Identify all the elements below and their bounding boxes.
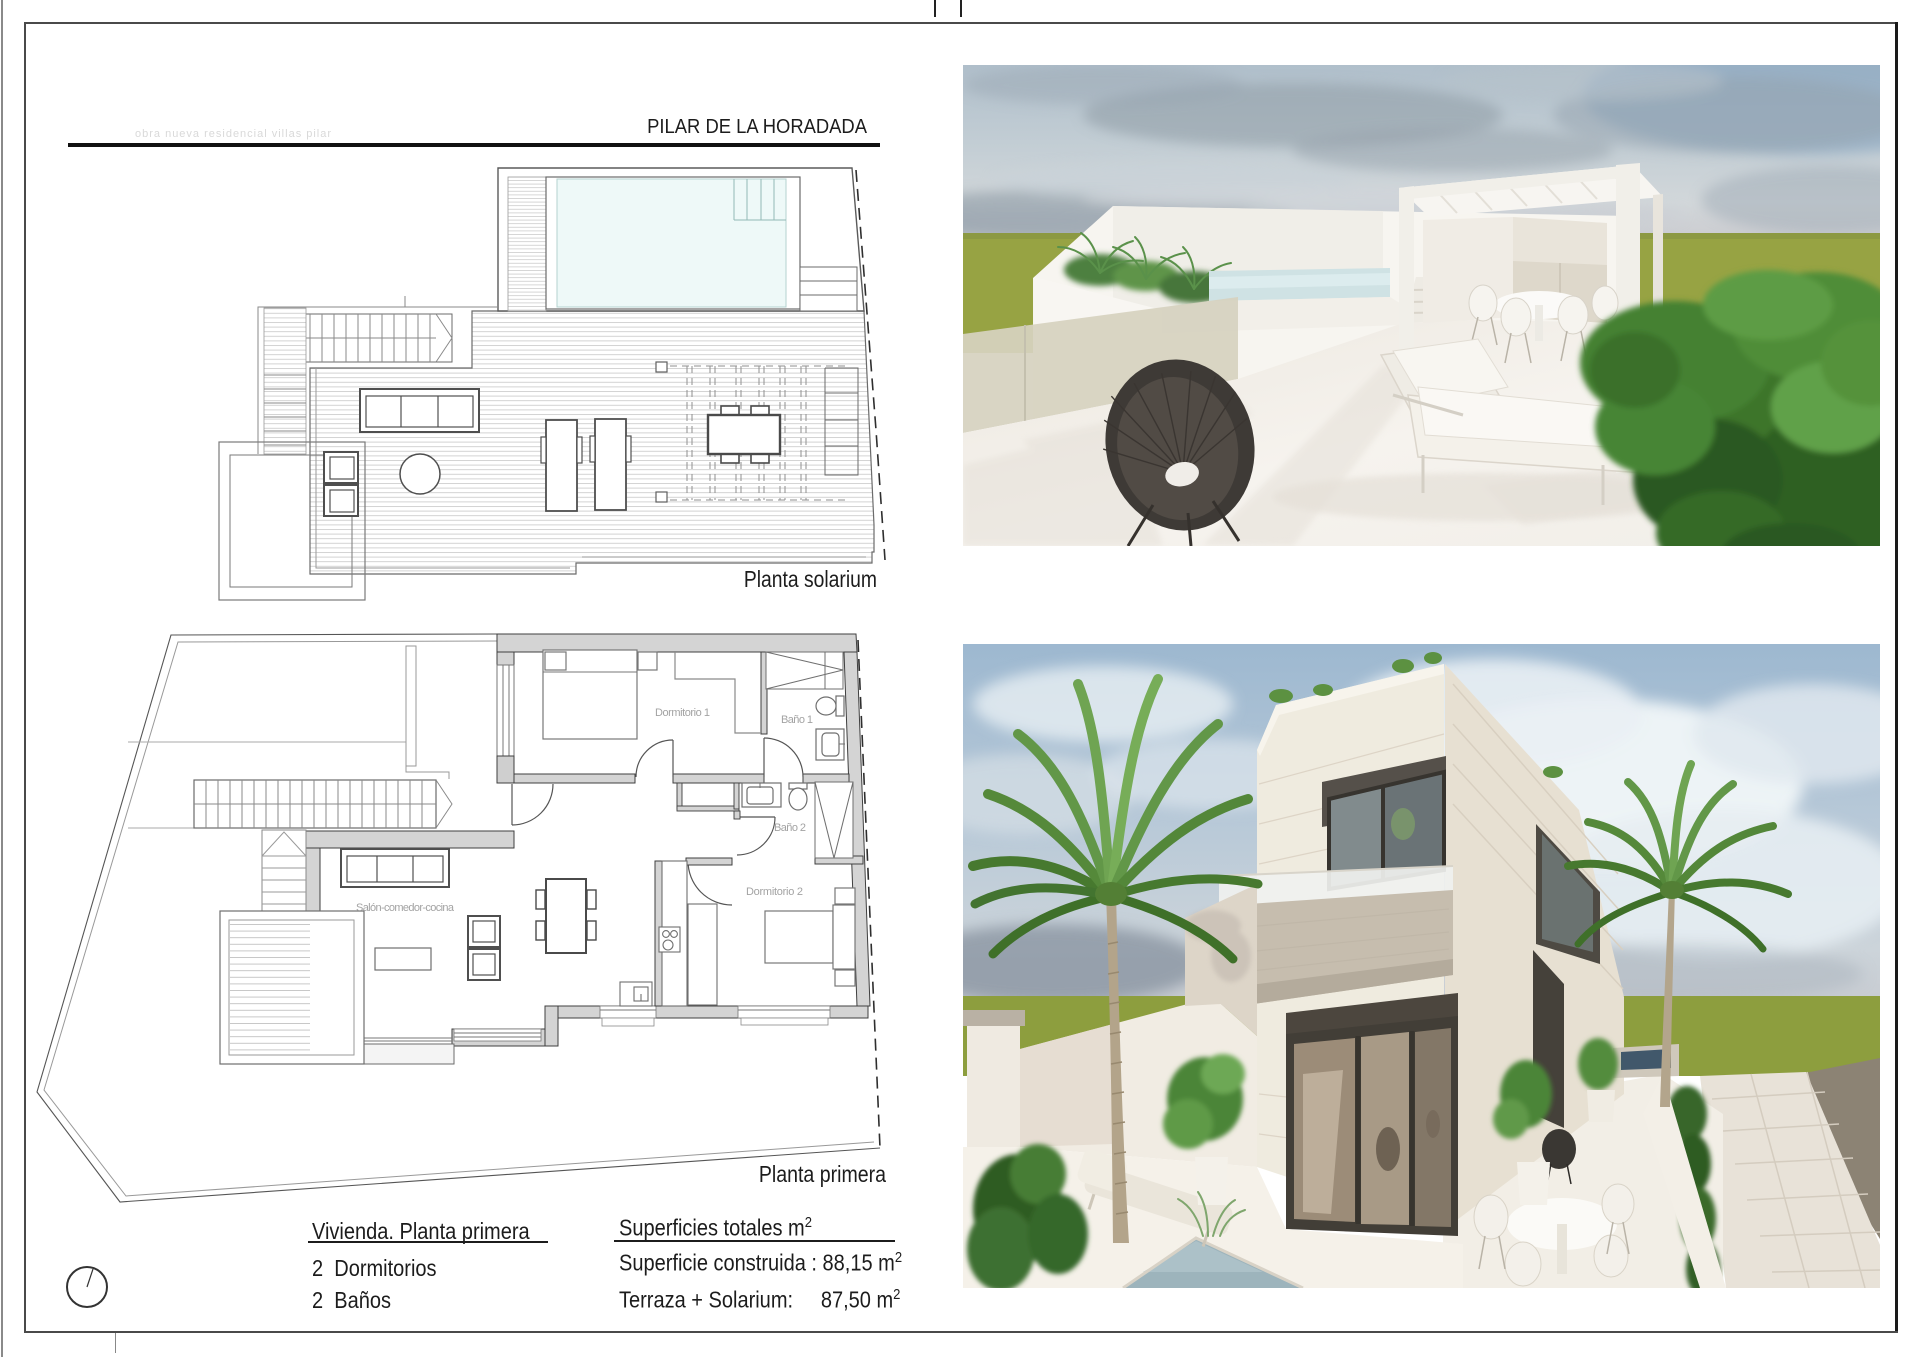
svg-text:Baño 1: Baño 1: [781, 714, 813, 726]
svg-text:Dormitorio 2: Dormitorio 2: [746, 886, 803, 898]
svg-text:Dormitorio 1: Dormitorio 1: [655, 707, 710, 719]
svg-text:Baño 2: Baño 2: [774, 822, 806, 834]
svg-text:Salón-comedor-cocina: Salón-comedor-cocina: [356, 902, 455, 914]
